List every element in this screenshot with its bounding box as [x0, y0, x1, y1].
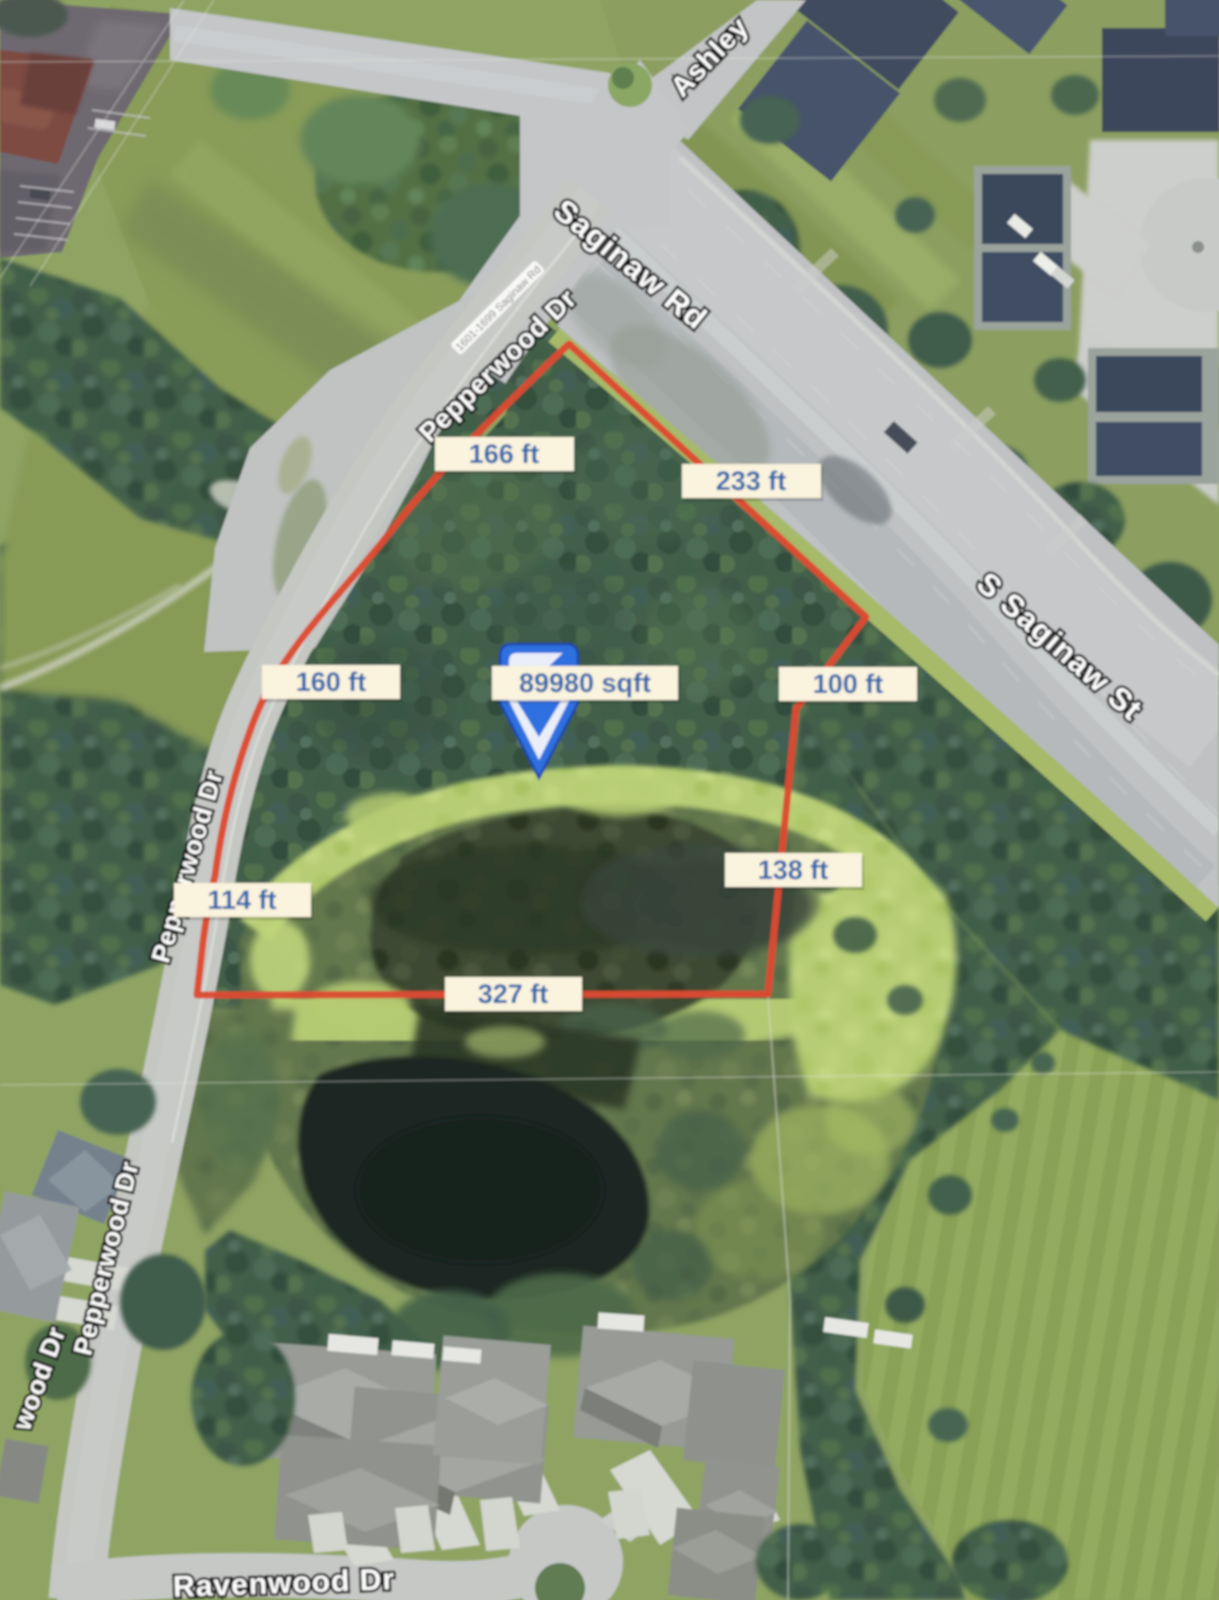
svg-text:327 ft: 327 ft	[478, 979, 549, 1009]
svg-text:100 ft: 100 ft	[813, 669, 884, 699]
svg-text:160 ft: 160 ft	[296, 667, 367, 697]
svg-text:114 ft: 114 ft	[207, 885, 276, 915]
svg-text:233 ft: 233 ft	[716, 466, 787, 496]
svg-text:166 ft: 166 ft	[469, 439, 540, 469]
svg-text:138 ft: 138 ft	[758, 855, 829, 885]
svg-text:89980 sqft: 89980 sqft	[519, 668, 651, 698]
